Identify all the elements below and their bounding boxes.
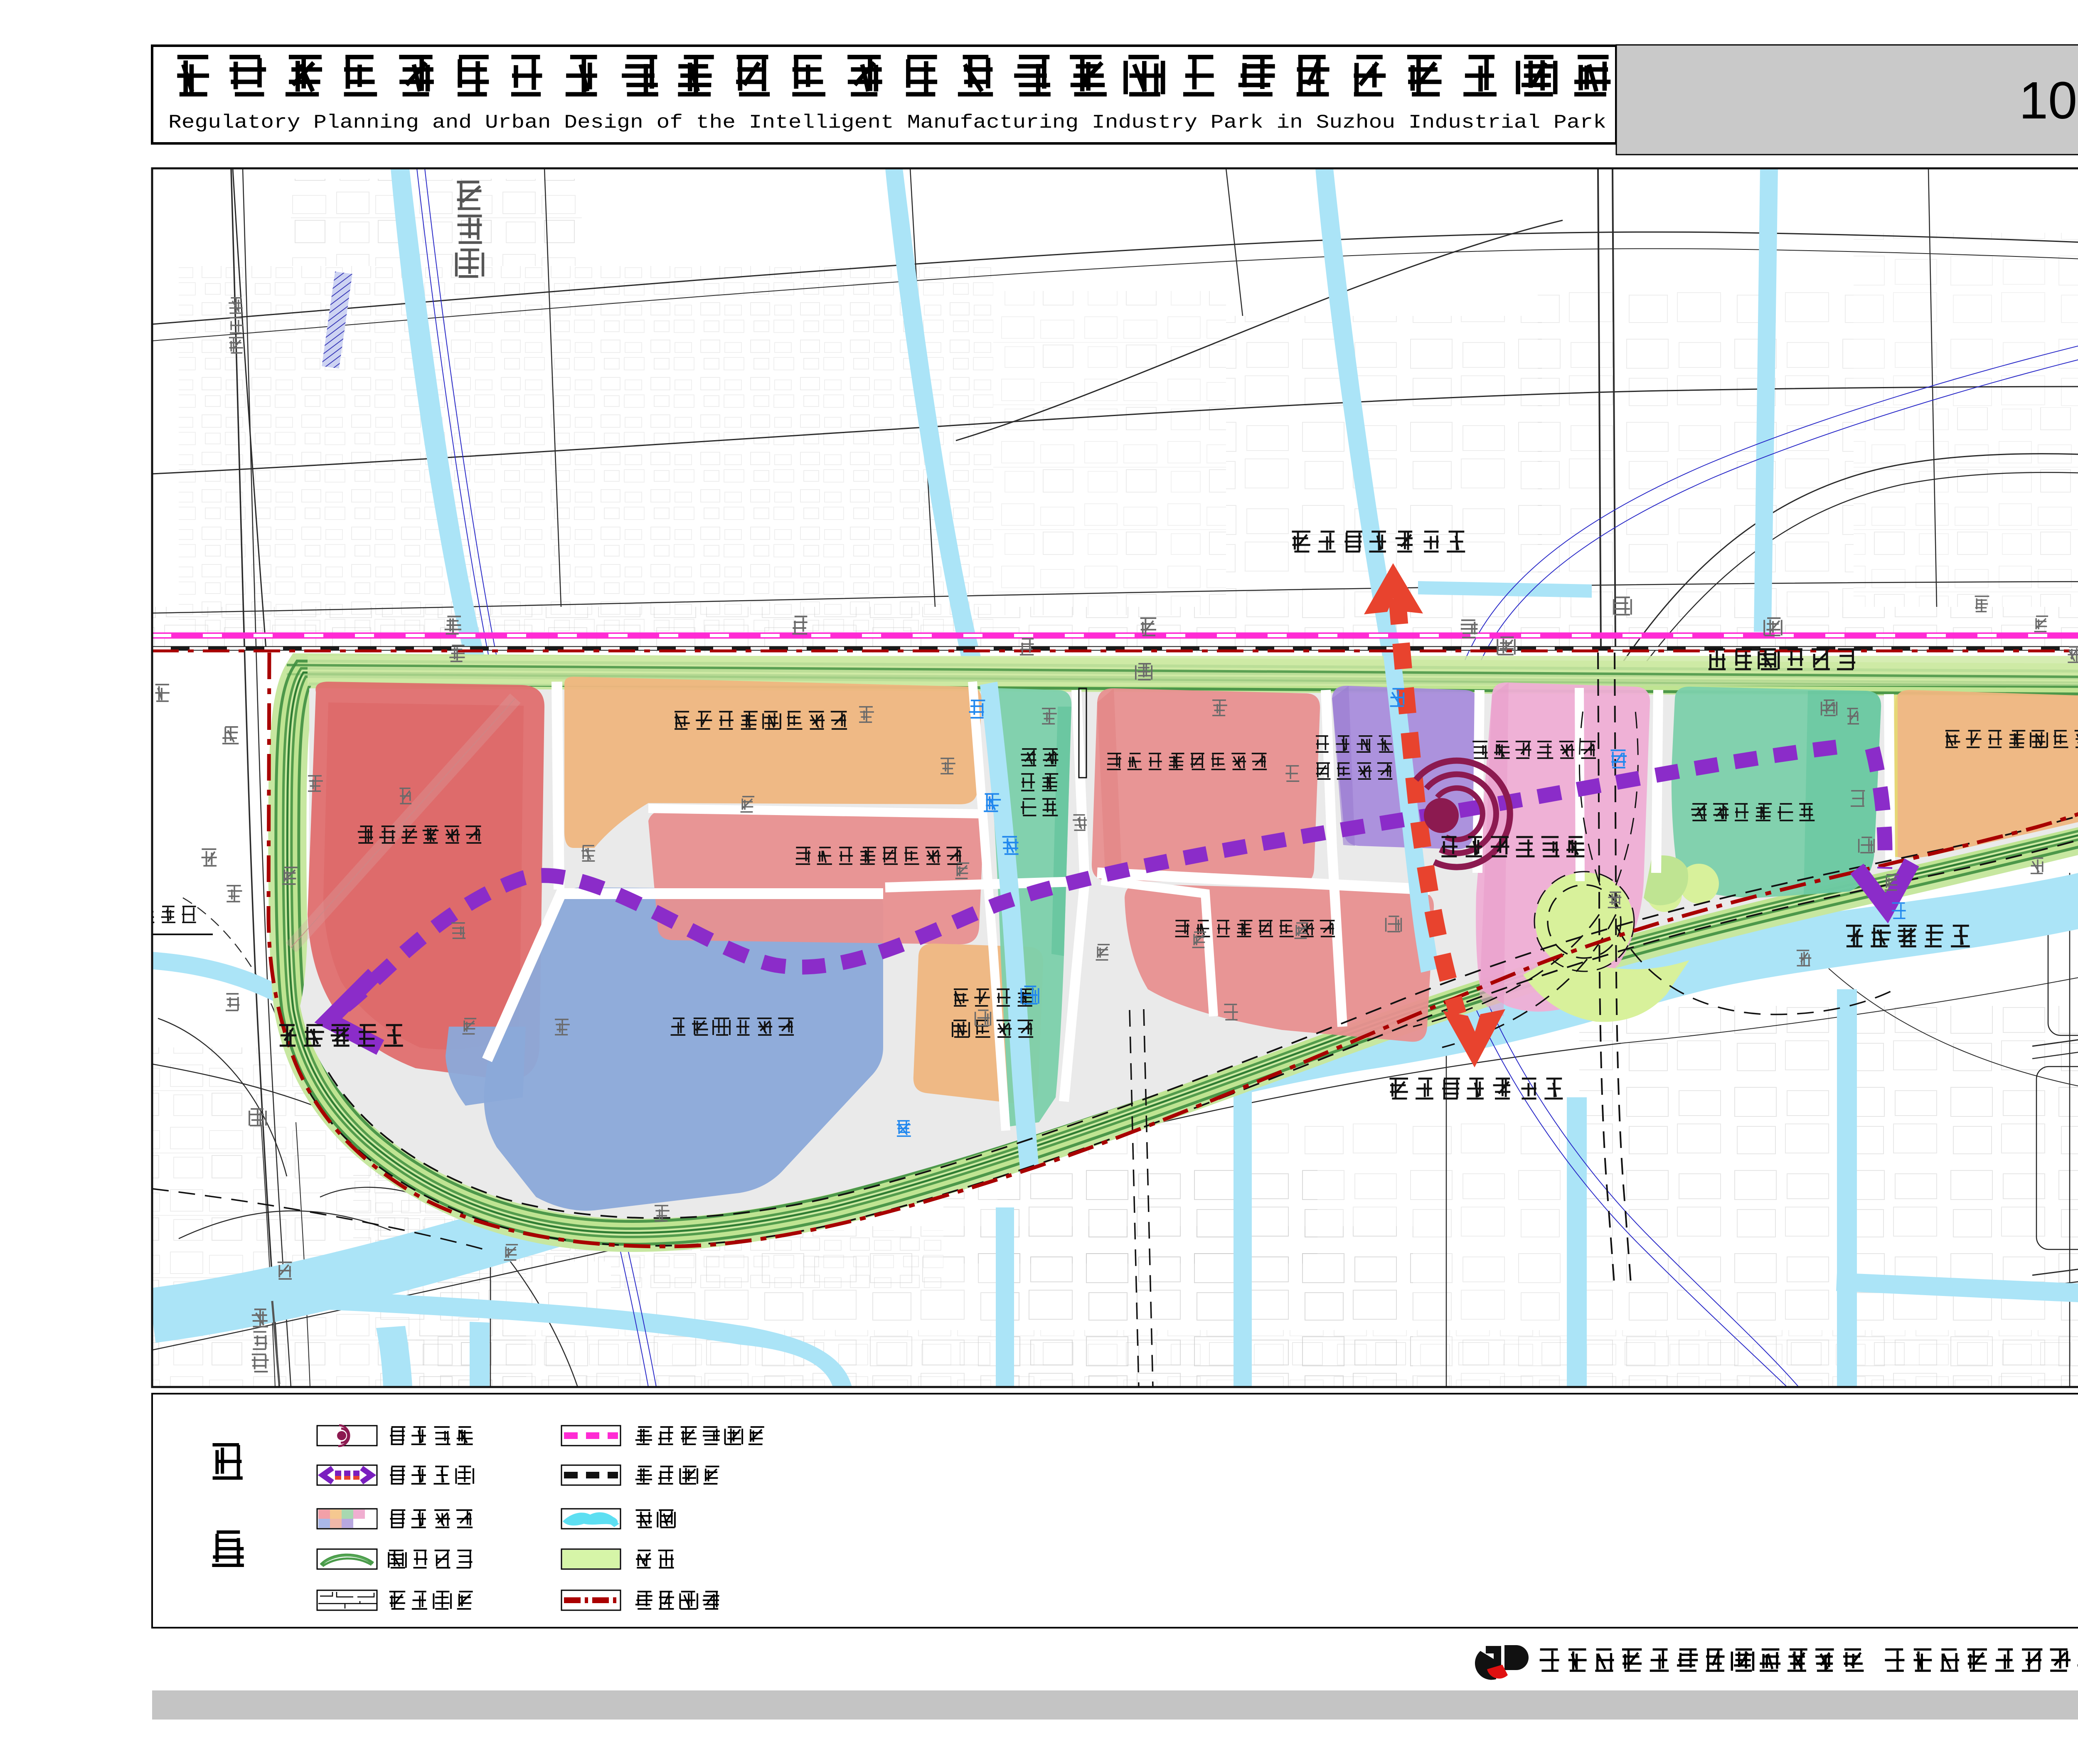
svg-text:10-: 10- (2019, 71, 2078, 130)
svg-text:Regulatory Planning and Urban: Regulatory Planning and Urban Design of … (168, 112, 1606, 133)
